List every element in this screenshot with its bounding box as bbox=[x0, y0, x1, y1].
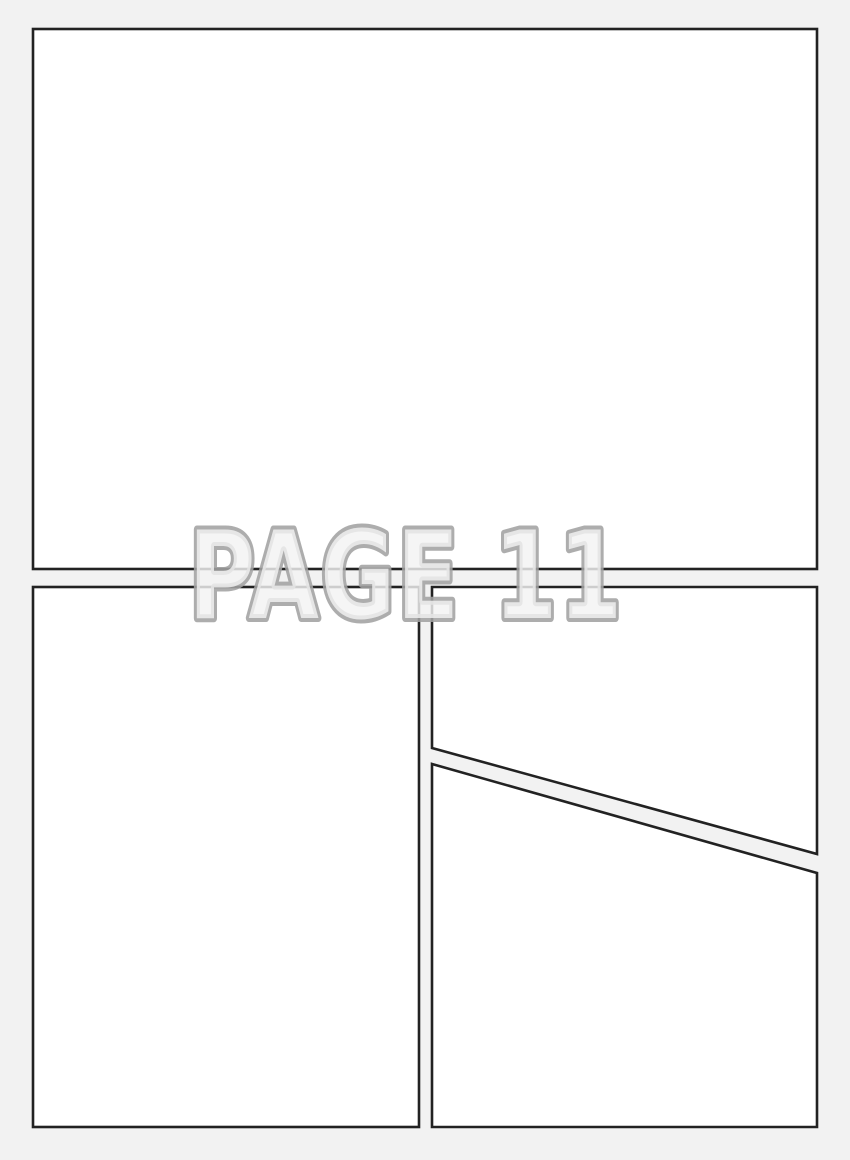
page-number-watermark: PAGE 11 bbox=[189, 506, 624, 647]
panel-top bbox=[33, 29, 817, 569]
panel-bottom-left bbox=[33, 587, 419, 1127]
page-canvas: PAGE 11 bbox=[0, 0, 850, 1160]
comic-page-template: PAGE 11 bbox=[0, 0, 850, 1160]
